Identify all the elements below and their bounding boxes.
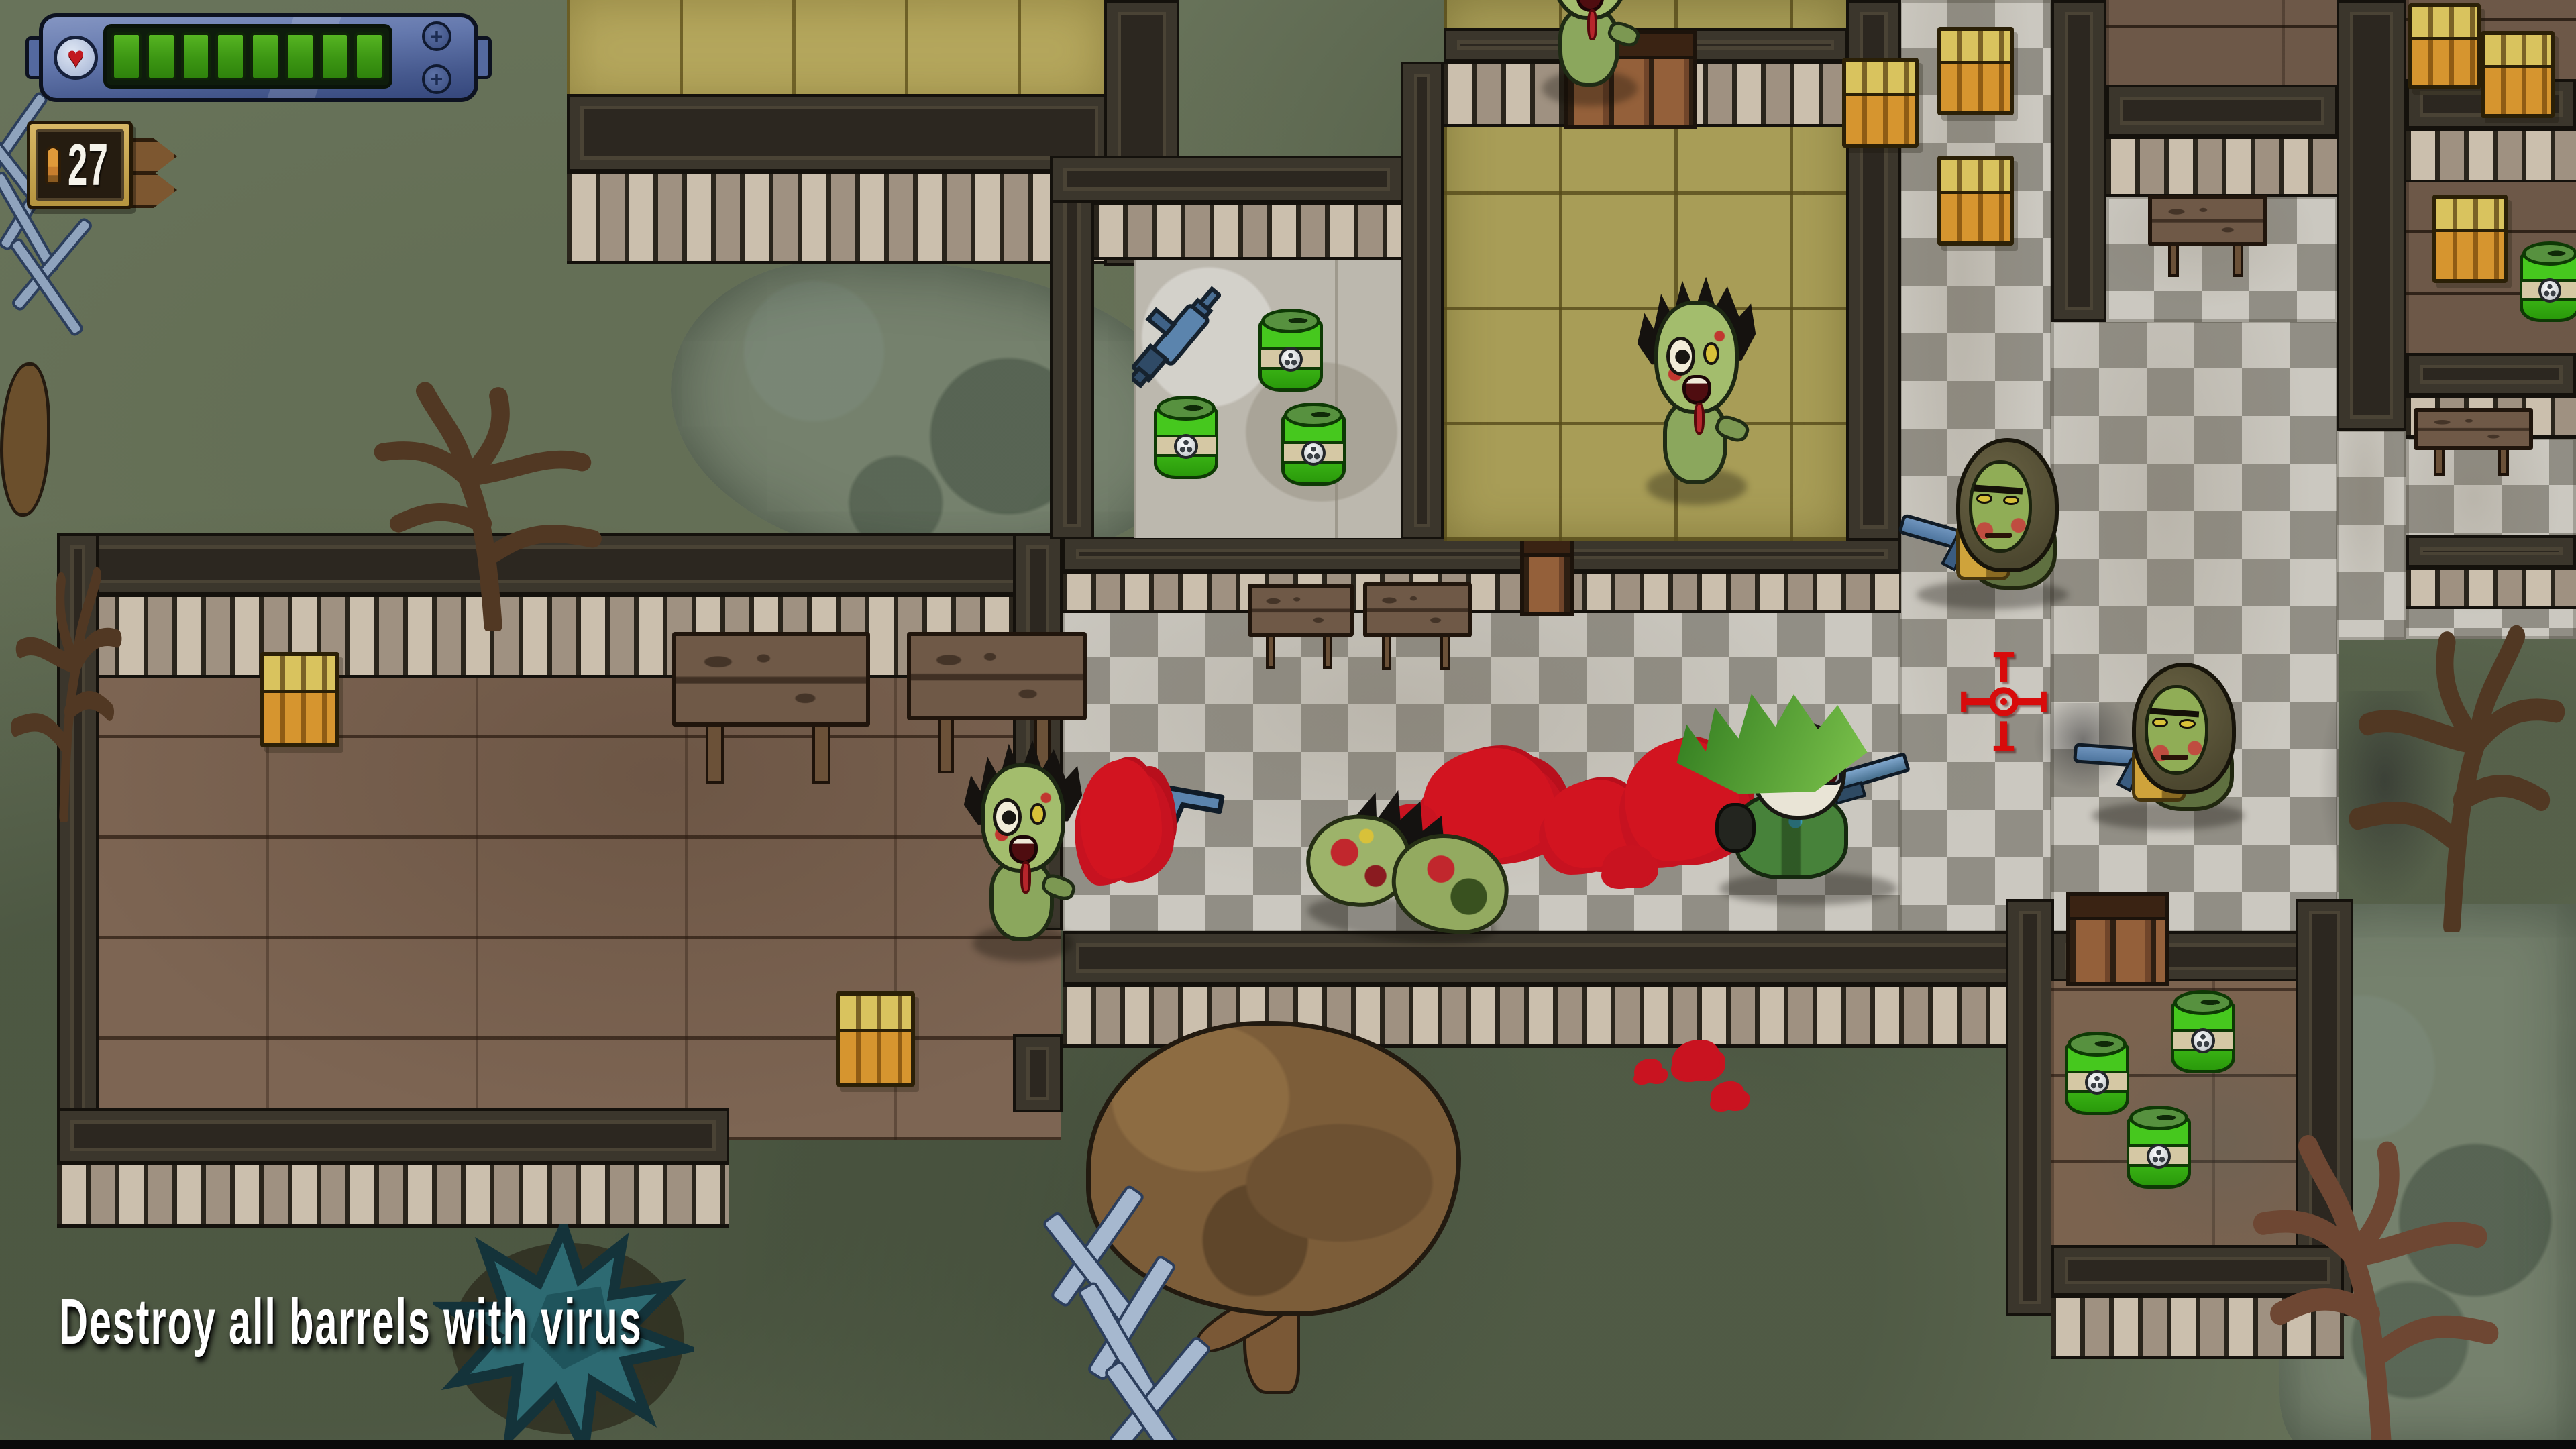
virus-barrel[interactable]: [1281, 402, 1346, 486]
health-segment: [250, 32, 280, 80]
wall-planks: [2406, 127, 2576, 184]
dead-tree: [2328, 617, 2576, 932]
objective-text: Destroy all barrels with virus: [59, 1285, 643, 1359]
stone-ground: [671, 260, 1182, 563]
wall-planks: [57, 1162, 729, 1228]
wooden-table: [2414, 408, 2533, 478]
player-character[interactable]: [1703, 719, 1914, 902]
wall-planks: [1063, 570, 1901, 613]
floor-tiles-yellow: [567, 0, 1105, 101]
wooden-crate: [836, 991, 915, 1087]
wall: [1063, 537, 1901, 572]
zombie-soldier-enemy[interactable]: [1902, 446, 2082, 606]
wall: [2106, 85, 2338, 137]
wooden-table: [1248, 584, 1354, 672]
health-segment: [111, 32, 142, 80]
zombie-enemy[interactable]: [1637, 292, 1756, 501]
virus-barrel[interactable]: [2127, 1106, 2191, 1189]
ammo-panel: 27: [36, 129, 124, 201]
health-segment: [146, 32, 176, 80]
screw-icon: +: [422, 64, 451, 94]
dead-tree: [362, 376, 624, 631]
wooden-table: [2148, 195, 2267, 280]
zombie-corpse: [1287, 772, 1527, 959]
virus-barrel[interactable]: [1154, 396, 1218, 479]
wall: [1013, 1034, 1063, 1112]
game-viewport: ♥ + + 27 Destroy all barrels with virus: [0, 0, 2576, 1449]
wall: [2406, 535, 2576, 568]
health-segments: [103, 24, 392, 89]
virus-barrel[interactable]: [2520, 241, 2576, 322]
wooden-crate: [2481, 31, 2555, 118]
wall: [567, 94, 1112, 172]
screw-icon: +: [422, 21, 451, 51]
crosshair-cursor[interactable]: [1959, 651, 2049, 753]
wooden-crate: [1937, 27, 2014, 115]
wall: [1050, 157, 1094, 539]
ammo-count: 27: [68, 136, 109, 195]
wooden-crate: [1842, 58, 1919, 148]
wall: [2406, 353, 2576, 396]
virus-barrel[interactable]: [2171, 990, 2235, 1073]
wall: [1050, 156, 1403, 203]
wall-planks: [2106, 136, 2338, 197]
wooden-crate: [1937, 156, 2014, 246]
health-segment: [320, 32, 350, 80]
wall: [57, 1108, 729, 1163]
wall-planks: [567, 170, 1112, 264]
floor-checkered: [2337, 429, 2406, 640]
virus-barrel[interactable]: [1258, 309, 1323, 392]
zombie-enemy[interactable]: [1534, 0, 1646, 102]
door[interactable]: [1520, 531, 1574, 616]
wooden-table: [1363, 582, 1472, 674]
blood-splatter: [1634, 1059, 1662, 1083]
wooden-crate: [2432, 195, 2508, 283]
smg-pickup[interactable]: [1132, 276, 1221, 402]
wall-planks: [2406, 566, 2576, 609]
wooden-barricade: [1081, 1177, 1222, 1449]
wooden-crate: [260, 652, 339, 747]
wall-planks: [1094, 201, 1402, 260]
letterbox-bar: [0, 1440, 2576, 1449]
health-segment: [181, 32, 211, 80]
wall: [1401, 62, 1444, 539]
dead-tree: [2241, 1127, 2522, 1449]
zombie-enemy[interactable]: [963, 755, 1083, 957]
door[interactable]: [2066, 892, 2169, 986]
wall: [2051, 0, 2106, 322]
health-bar: ♥ + +: [39, 13, 478, 102]
bush: [0, 362, 50, 517]
wall: [2006, 899, 2054, 1316]
floor-wood-planks: [2106, 0, 2338, 90]
bullet-icon: [45, 146, 61, 184]
wooden-crate: [2408, 3, 2481, 89]
zombie-soldier-enemy[interactable]: [2077, 671, 2259, 826]
virus-barrel[interactable]: [2065, 1032, 2129, 1115]
floor-checkered: [2051, 321, 2339, 932]
dead-tree: [0, 560, 127, 822]
health-segment: [354, 32, 384, 80]
wall: [1063, 931, 2054, 985]
wooden-table: [672, 632, 870, 790]
health-segment: [215, 32, 246, 80]
blood-splatter: [1711, 1081, 1744, 1110]
ammo-counter: 27: [27, 121, 133, 209]
heart-icon: ♥: [54, 36, 98, 80]
health-segment: [285, 32, 315, 80]
wall: [2337, 0, 2406, 431]
